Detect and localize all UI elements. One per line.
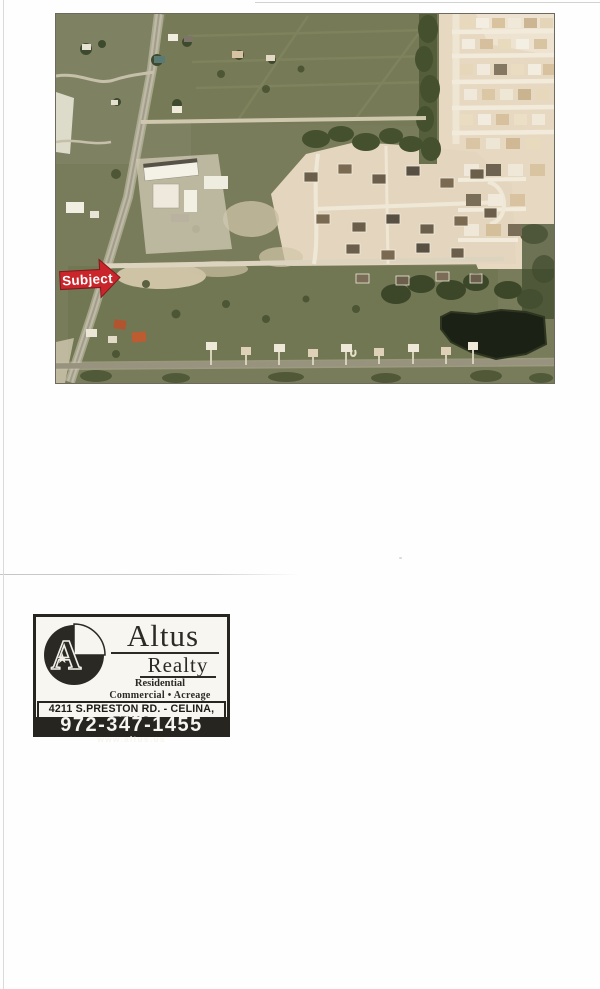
brand-name-altus: Altus: [111, 621, 219, 654]
scan-line-left-edge: [3, 0, 4, 989]
phone-number: 972-347-1455: [36, 716, 227, 735]
tagline-commercial-acreage: Commercial • Acreage: [94, 690, 226, 701]
dirt-patch-1: [223, 201, 279, 237]
scan-speck: [399, 557, 402, 559]
trees-right-edge: [517, 224, 554, 319]
aerial-photo: Subject: [55, 13, 555, 384]
business-card: A ★ Altus Realty Residential Commercial …: [33, 614, 230, 737]
scan-line-top: [255, 2, 600, 3]
phone-bar: 972-347-1455 www.altus.us: [36, 717, 227, 734]
brand-name-realty: Realty: [140, 655, 217, 678]
scan-line-middle: [0, 574, 300, 575]
aerial-photo-graphic: Subject: [56, 14, 554, 383]
tagline-residential: Residential: [94, 678, 226, 690]
star-icon: ★: [56, 650, 69, 666]
central-street-3: [386, 146, 388, 264]
website-url: www.altus.us: [36, 735, 227, 744]
subject-arrow-label: Subject: [62, 271, 114, 289]
tagline-block: Residential Commercial • Acreage: [94, 678, 226, 701]
brand-block: Altus Realty: [106, 621, 224, 678]
